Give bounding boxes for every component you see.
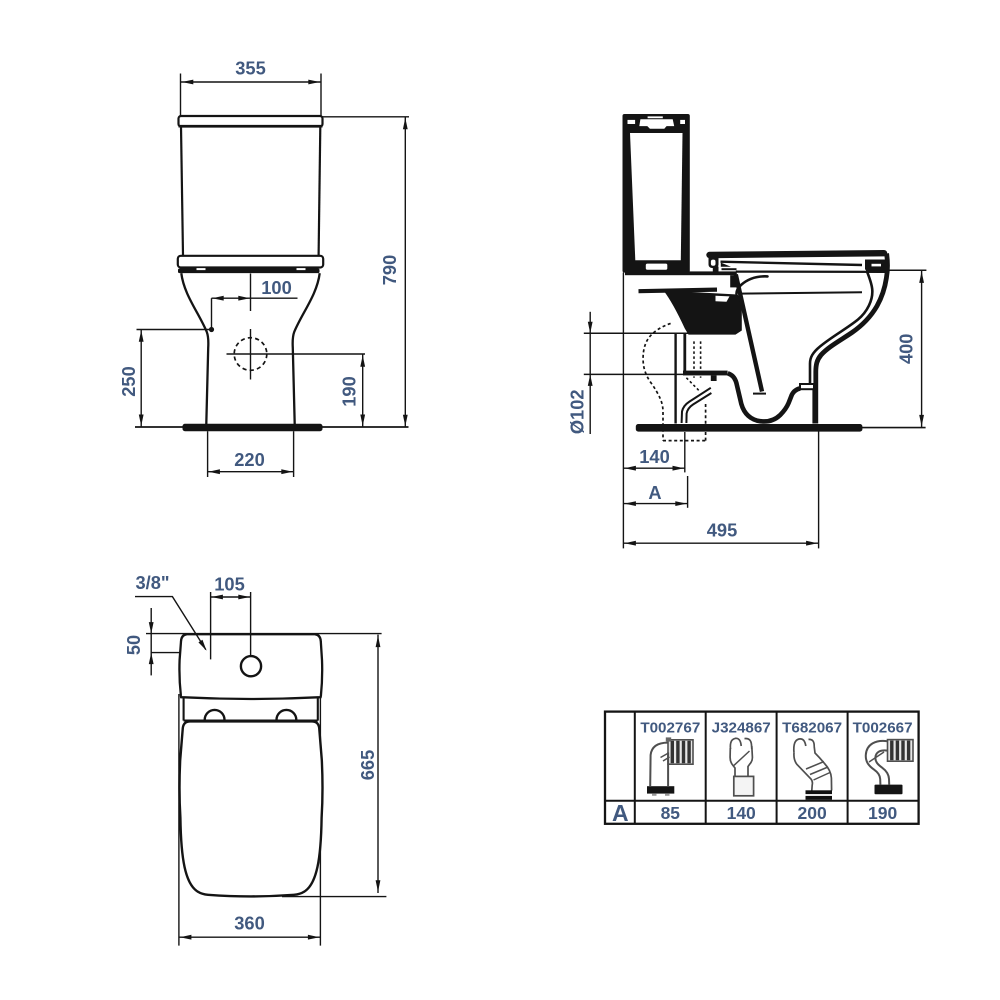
svg-text:T002767: T002767 [640, 720, 700, 737]
svg-text:790: 790 [379, 255, 400, 286]
svg-text:190: 190 [339, 376, 360, 407]
svg-text:360: 360 [234, 912, 265, 933]
svg-text:105: 105 [214, 573, 245, 594]
svg-text:200: 200 [797, 803, 826, 823]
svg-text:665: 665 [357, 750, 378, 781]
svg-text:A: A [612, 800, 629, 826]
svg-text:A: A [648, 482, 661, 503]
svg-text:190: 190 [868, 803, 897, 823]
svg-text:J324867: J324867 [712, 720, 771, 737]
svg-text:220: 220 [234, 449, 265, 470]
svg-text:400: 400 [896, 334, 917, 365]
svg-text:495: 495 [707, 520, 738, 541]
svg-text:50: 50 [123, 635, 144, 655]
svg-text:Ø102: Ø102 [567, 389, 588, 434]
svg-text:85: 85 [661, 803, 681, 823]
svg-text:3/8": 3/8" [135, 572, 169, 593]
svg-text:100: 100 [261, 277, 292, 298]
svg-text:355: 355 [235, 58, 266, 79]
svg-text:T002667: T002667 [853, 720, 913, 737]
svg-text:140: 140 [727, 803, 756, 823]
svg-text:T682067: T682067 [782, 720, 842, 737]
svg-text:140: 140 [639, 446, 670, 467]
svg-text:250: 250 [118, 366, 139, 397]
